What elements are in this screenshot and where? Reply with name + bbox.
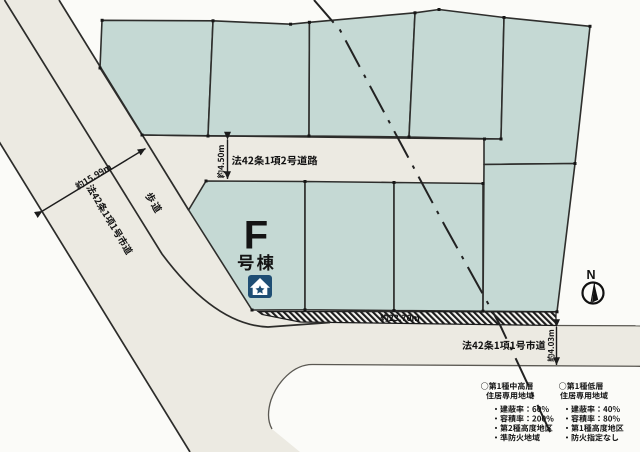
svg-text:N: N bbox=[586, 268, 595, 282]
svg-text:F: F bbox=[244, 214, 268, 258]
